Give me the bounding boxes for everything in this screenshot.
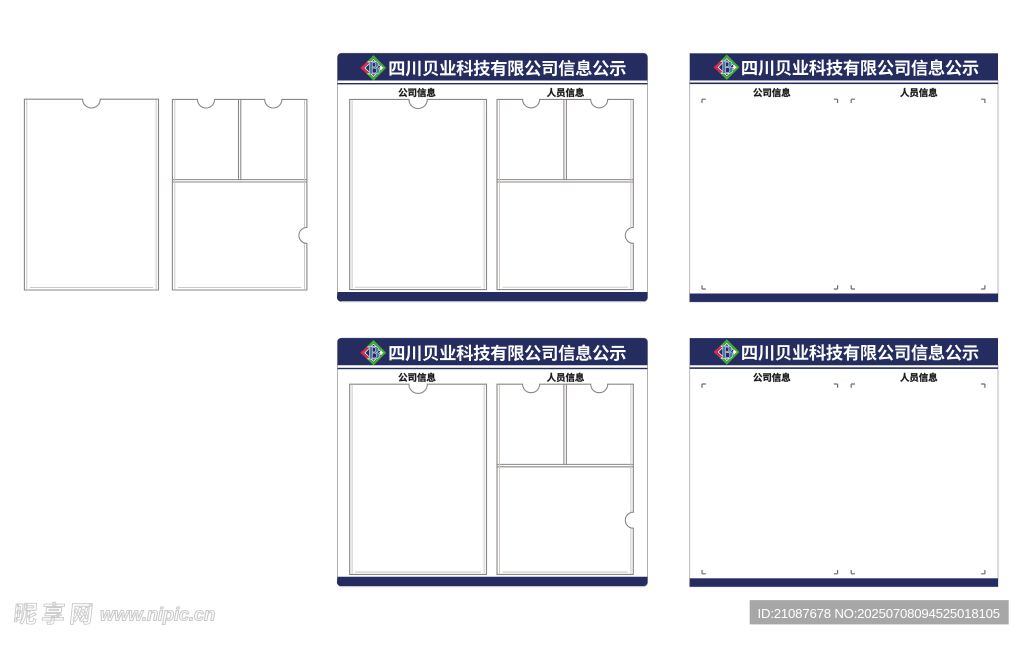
svg-text:ID:21087678 NO:202507080945250: ID:21087678 NO:20250708094525018105: [758, 606, 1000, 621]
svg-text:www.nipic.cn: www.nipic.cn: [100, 603, 215, 624]
svg-text:B: B: [367, 58, 380, 79]
svg-text:B: B: [367, 343, 380, 364]
svg-text:B: B: [721, 57, 734, 78]
svg-text:B: B: [721, 342, 734, 363]
